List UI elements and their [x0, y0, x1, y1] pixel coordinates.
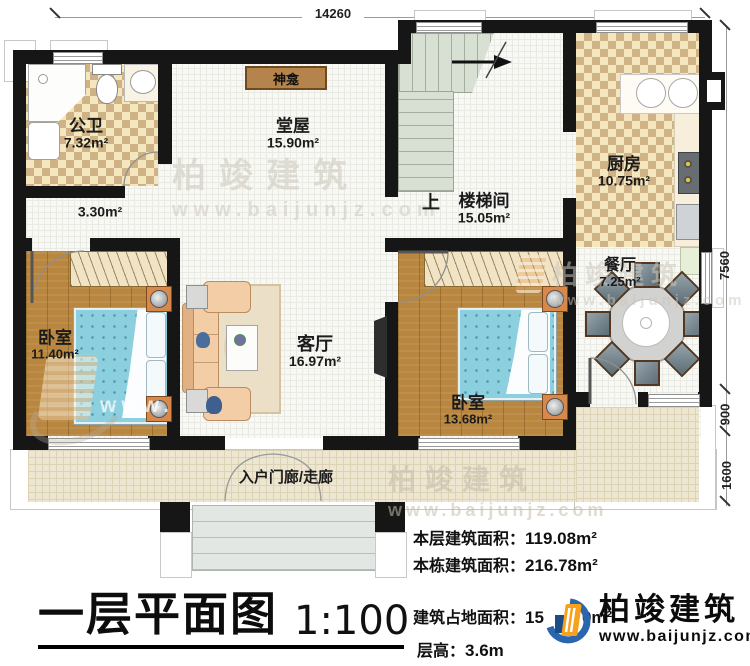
wall: [398, 238, 563, 251]
room-name: 公卫: [64, 118, 108, 136]
room-name: 楼梯间: [458, 193, 510, 211]
nightstand: [542, 286, 568, 312]
coffee-table: [226, 325, 258, 371]
room-area: 7.32m²: [64, 136, 108, 151]
logo-icon: [543, 594, 593, 652]
wardrobe: [424, 251, 564, 287]
step-side-wall: [375, 532, 407, 578]
pillow: [528, 312, 548, 352]
room-label-bedroom-right: 卧室 13.68m²: [444, 394, 492, 425]
stat-label: 本层建筑面积：: [413, 531, 525, 548]
stair-flight-left: [398, 91, 454, 192]
stat-value: 119.08m²: [525, 529, 597, 548]
wall: [13, 436, 48, 450]
room-label-living: 客厅 16.97m²: [289, 335, 341, 369]
wall: [398, 20, 411, 64]
scale-label: 1:100: [294, 598, 409, 644]
room-area: 15.90m²: [267, 136, 319, 151]
room-label-bathroom: 公卫 7.32m²: [64, 118, 108, 151]
dimension-tick: [719, 383, 730, 394]
stat-floor-height: 层高：3.6m: [417, 637, 504, 661]
wall: [385, 50, 398, 197]
stat-label: 建筑占地面积：: [413, 610, 525, 627]
side-table: [186, 389, 208, 413]
washing-machine: [28, 122, 60, 160]
wall: [13, 186, 125, 198]
wardrobe: [70, 251, 170, 287]
altar-cabinet: 神龛: [245, 66, 327, 90]
stairs-up-label: 上: [422, 194, 440, 213]
room-name: 厨房: [598, 156, 650, 174]
nightstand: [146, 286, 172, 312]
title-underline: [38, 645, 404, 649]
room-area: 10.75m²: [598, 174, 650, 189]
title-block: 一层平面图 1:100: [38, 578, 409, 644]
cooktop: [678, 152, 700, 194]
wall: [563, 20, 576, 132]
room-area: 13.68m²: [444, 412, 492, 426]
right-dimension-1600: 1600: [719, 461, 734, 490]
stat-value: 3.6m: [465, 641, 504, 660]
toilet-bowl: [96, 74, 118, 104]
room-label-bedroom-left: 卧室 11.40m²: [31, 329, 79, 360]
kitchen-sink: [668, 78, 698, 108]
page-title: 一层平面图: [38, 578, 278, 644]
figure: [206, 396, 222, 414]
right-dimension-900: 900: [717, 404, 732, 426]
dimension-tick: [719, 425, 730, 436]
wall: [158, 50, 172, 164]
dimension-tick: [719, 495, 730, 506]
porch-floor-right: [576, 407, 699, 502]
sofa: [193, 305, 219, 391]
wall: [323, 436, 420, 450]
room-label-hall: 堂屋 15.90m²: [267, 118, 319, 151]
room-label-dining: 餐厅 7.25m²: [599, 258, 640, 288]
stat-building-area: 本栋建筑面积：216.78m²: [413, 552, 598, 576]
bathroom-sink: [130, 70, 156, 94]
room-name: 卧室: [444, 394, 492, 412]
altar-label: 神龛: [273, 69, 299, 88]
nightstand: [146, 396, 172, 422]
stat-value: 216.78m²: [525, 556, 598, 575]
table-decor: [234, 334, 246, 346]
dining-chair: [634, 360, 660, 386]
wall: [698, 392, 712, 407]
entry-steps: [192, 505, 378, 571]
pillow: [528, 354, 548, 394]
armchair: [203, 281, 251, 313]
room-label-porch: 入户门廊/走廊: [239, 470, 333, 486]
room-area: 15.05m²: [458, 211, 510, 226]
stat-label: 层高：: [417, 643, 465, 660]
shower-drain: [38, 74, 48, 84]
burner: [684, 176, 692, 184]
wall: [638, 392, 648, 407]
room-area: 11.40m²: [31, 347, 79, 361]
room-area: 16.97m²: [289, 354, 341, 369]
window: [648, 394, 700, 407]
pillow: [146, 312, 166, 358]
stat-floor-area: 本层建筑面积：119.08m²: [413, 525, 597, 549]
wall: [148, 436, 225, 450]
dining-chair: [585, 311, 611, 337]
room-label-kitchen: 厨房 10.75m²: [598, 156, 650, 189]
window: [48, 438, 150, 450]
window: [416, 22, 482, 33]
porch-pillar: [160, 502, 190, 532]
logo: 柏竣建筑 www.baijunjz.com: [543, 594, 750, 652]
right-dimension-7560: 7560: [717, 251, 732, 280]
logo-brand: 柏竣建筑: [599, 594, 750, 627]
nightstand: [542, 394, 568, 420]
stat-label: 本栋建筑面积：: [413, 558, 525, 575]
room-area: 7.25m²: [599, 275, 640, 289]
top-dimension-label: 14260: [302, 6, 364, 21]
window: [596, 22, 688, 33]
kitchen-flue-inner: [707, 80, 721, 102]
side-table: [186, 285, 208, 309]
burner: [684, 160, 692, 168]
wall: [13, 238, 32, 251]
room-name: 客厅: [289, 335, 341, 354]
logo-url: www.baijunjz.com: [599, 628, 750, 646]
wall: [576, 392, 590, 407]
room-name: 卧室: [31, 329, 79, 347]
room-name: 堂屋: [267, 118, 319, 136]
tv: [374, 316, 387, 378]
room-label-corridor: 3.30m²: [78, 205, 122, 220]
room-name: 餐厅: [599, 258, 640, 275]
room-label-stairwell: 楼梯间 15.05m²: [458, 193, 510, 226]
window: [53, 52, 103, 64]
window: [418, 438, 520, 450]
step-side-wall: [160, 532, 192, 578]
floor-plan-canvas: 14260 7560 900 1600: [0, 0, 750, 666]
porch-pillar: [375, 502, 405, 532]
figure: [196, 332, 210, 348]
wall: [518, 436, 576, 450]
wall: [385, 238, 398, 252]
kitchen-appliance: [676, 204, 700, 240]
dimension-tick: [719, 19, 730, 30]
stat-value: 15: [525, 608, 544, 627]
table-center: [640, 317, 652, 329]
window: [701, 252, 712, 304]
kitchen-sink: [636, 78, 666, 108]
